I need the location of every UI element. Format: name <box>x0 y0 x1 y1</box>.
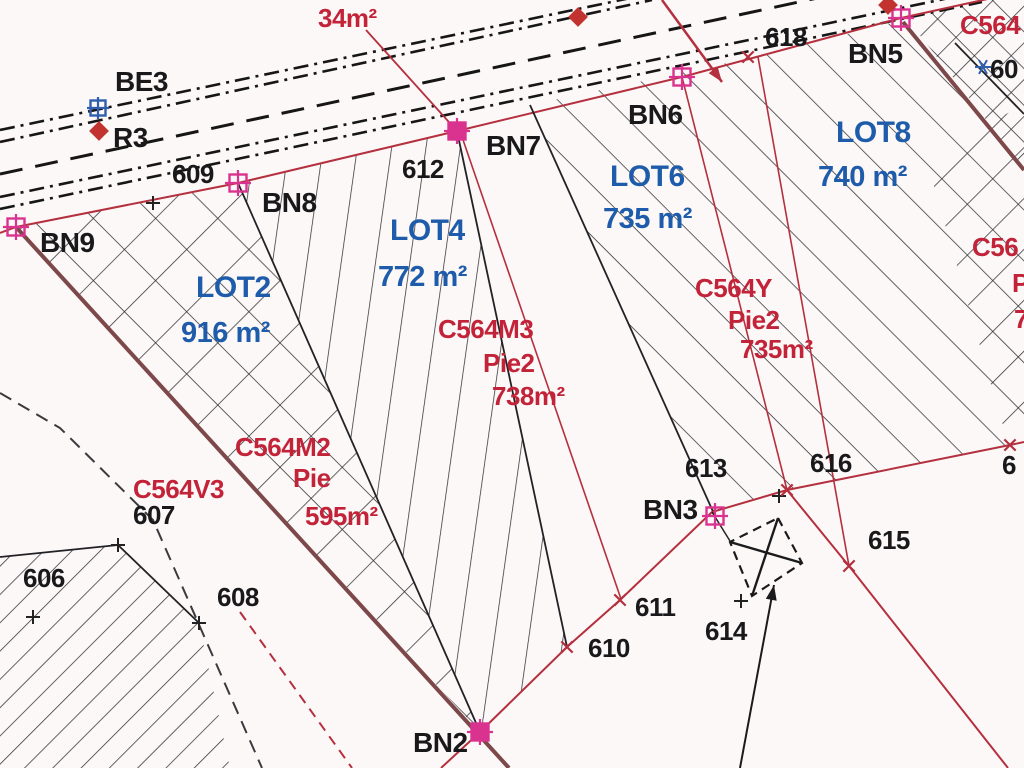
dashed-red-limit <box>240 612 352 768</box>
parcel-label-C564-top-right: C564 <box>960 10 1021 40</box>
tick-cross <box>734 594 748 608</box>
point-number-616: 616 <box>810 448 852 478</box>
point-number-606: 606 <box>23 563 65 593</box>
annotation-area: 34m² <box>318 3 378 33</box>
lot-area-LOT2: 916 m² <box>181 317 271 349</box>
marker-R3 <box>89 121 109 141</box>
marker-BE3 <box>87 97 109 119</box>
parcel-label-C56-right-edge: 7 <box>1014 304 1024 334</box>
point-number-618: 618 <box>765 22 807 52</box>
survey-point-label-BN3: BN3 <box>643 494 698 525</box>
marker-BN3 <box>702 503 728 529</box>
lot-area-LOT6: 735 m² <box>603 203 693 235</box>
parcel-label-C564M3: 738m² <box>492 381 565 411</box>
parcel-label-C564M2: C564M2 <box>235 432 330 462</box>
survey-point-label-R3: R3 <box>113 122 148 153</box>
black-arrow-614 <box>740 585 774 768</box>
lot-label-LOT8: LOT8 <box>836 116 911 149</box>
survey-point-label-BN7: BN7 <box>486 130 541 161</box>
marker-BN7 <box>444 118 470 144</box>
survey-point-label-BN8: BN8 <box>262 187 317 218</box>
point-number-607: 607 <box>133 500 175 530</box>
lot-label-LOT6: LOT6 <box>610 160 685 193</box>
point-number-613: 613 <box>685 453 727 483</box>
parcel-label-C564M3: C564M3 <box>438 314 533 344</box>
red-arrow <box>662 0 722 82</box>
survey-point-label-BE3: BE3 <box>115 66 168 97</box>
parcel-label-C564Y: 735m² <box>740 334 813 364</box>
parcel-label-C56-right-edge: C56 <box>972 232 1018 262</box>
survey-point-label-BN2: BN2 <box>413 727 468 758</box>
point-number-615: 615 <box>868 525 910 555</box>
cadastral-map: LOT2916 m²LOT4772 m²LOT6735 m²LOT8740 m²… <box>0 0 1024 768</box>
lot-label-LOT2: LOT2 <box>196 271 271 304</box>
lot-area-LOT8: 740 m² <box>818 161 908 193</box>
point-number-614: 614 <box>705 616 748 646</box>
survey-point-label-BN6: BN6 <box>628 99 683 130</box>
survey-point-label-BN5: BN5 <box>848 38 903 69</box>
lot-label-LOT4: LOT4 <box>390 214 465 247</box>
point-number-609: 609 <box>172 159 214 189</box>
survey-point-label-BN9: BN9 <box>40 227 95 258</box>
parcel-label-C564M2: Pie <box>293 463 331 493</box>
point-number-6: 6 <box>1002 450 1016 480</box>
parcel-label-C564Y: C564Y <box>695 273 772 303</box>
parcel-label-C56-right-edge: P <box>1012 268 1024 298</box>
point-number-608: 608 <box>217 582 259 612</box>
marker-BN6 <box>669 64 695 90</box>
point-number-60: 60 <box>990 54 1018 84</box>
square-614-diagonal <box>730 542 802 563</box>
parcel-label-C564M3: Pie2 <box>483 348 535 378</box>
marker-BN9 <box>3 214 29 240</box>
lot-area-LOT4: 772 m² <box>378 261 468 293</box>
cadastral-plan-page: LOT2916 m²LOT4772 m²LOT6735 m²LOT8740 m²… <box>0 0 1024 768</box>
black-arrow-614-head <box>766 585 777 601</box>
parcel-label-C564M2: 595m² <box>305 501 378 531</box>
marker-BN8 <box>225 170 251 196</box>
marker-BN2 <box>467 719 493 745</box>
point-number-611: 611 <box>635 592 675 622</box>
point-number-612: 612 <box>402 154 444 184</box>
point-number-610: 610 <box>588 633 630 663</box>
parcel-label-C564Y: Pie2 <box>728 305 780 335</box>
